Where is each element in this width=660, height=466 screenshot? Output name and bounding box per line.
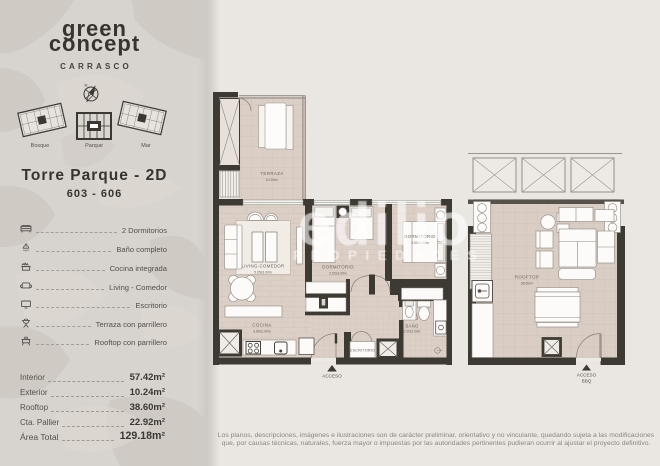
svg-text:3.00x2.62m: 3.00x2.62m [411,241,429,245]
svg-text:5.05x3.00m: 5.05x3.00m [254,271,272,275]
svg-text:DORMITORIO: DORMITORIO [322,265,354,270]
svg-text:LIVING-COMEDOR: LIVING-COMEDOR [242,264,285,269]
svg-text:COCINA: COCINA [252,323,271,328]
svg-text:ROOFTOP: ROOFTOP [515,275,539,280]
svg-text:BAÑO: BAÑO [405,324,419,329]
svg-text:ESCRITORIO: ESCRITORIO [350,349,376,353]
svg-text:BBQ: BBQ [582,379,592,384]
svg-text:3.60x2.00m: 3.60x2.00m [253,330,271,334]
svg-text:DORMITORIO: DORMITORIO [404,234,436,239]
svg-text:2.00x2.00m: 2.00x2.00m [404,330,421,334]
svg-text:38.60m²: 38.60m² [521,282,534,286]
svg-text:ACCESO: ACCESO [577,373,597,378]
svg-text:TERRAZA: TERRAZA [260,171,283,176]
svg-text:N: N [85,83,88,88]
svg-text:2.50x3.00m: 2.50x3.00m [329,272,347,276]
svg-text:ACCESO: ACCESO [322,374,342,379]
svg-text:10.24m²: 10.24m² [266,178,279,182]
